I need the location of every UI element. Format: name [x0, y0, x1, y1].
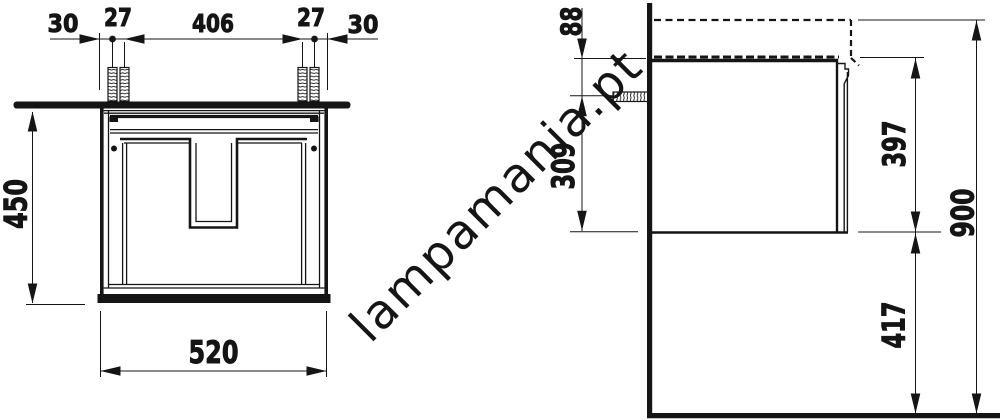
wall-plugs-front: [108, 68, 319, 102]
countertop-dashed-front: [851, 20, 859, 66]
wall-plug-icon: [108, 68, 117, 102]
dim-hole-span-label: 406: [192, 9, 234, 38]
floor-line: [647, 413, 1000, 418]
dimension-dot: [311, 36, 318, 43]
watermark-text: lampamania.pt: [339, 38, 654, 353]
technical-drawing: lampamania.pt 30 27 406: [0, 0, 1000, 420]
dim-cabinet-width-label: 520: [189, 335, 239, 371]
dim-left-gap-label: 27: [104, 3, 132, 32]
cabinet-side-outline: [652, 59, 848, 234]
countertop-front: [14, 102, 351, 109]
dim-body-height-label: 397: [877, 121, 913, 168]
wall-plug-icon: [298, 68, 307, 102]
wall-plug-side-icon: [613, 92, 648, 102]
front-view: 30 27 406 27 30 450 520: [0, 3, 379, 377]
dim-right-edge-label: 30: [348, 10, 379, 39]
dim-floor-clearance-label: 417: [877, 302, 913, 349]
wall-plug-icon: [120, 68, 129, 102]
dim-left-edge-label: 30: [48, 9, 79, 38]
dimension-dot: [109, 36, 116, 43]
cabinet-front-details: [104, 111, 325, 288]
runner-pin-right: [311, 146, 317, 152]
runner-pin-left: [111, 146, 117, 152]
dim-total-height-label: 900: [946, 189, 982, 238]
dim-top-to-screw-label: 88: [555, 7, 588, 37]
cabinet-front-solids: [98, 108, 331, 303]
wall-plug-icon: [310, 68, 319, 102]
dim-cabinet-height-label: 450: [0, 179, 35, 229]
dim-right-gap-label: 27: [297, 3, 325, 32]
countertop-dashed: [654, 20, 859, 66]
wall-line: [647, 3, 652, 418]
dim-screw-to-bottom-label: 309: [546, 143, 582, 190]
drawer-front-outline: [120, 139, 307, 228]
drawer-side-front: [838, 64, 849, 232]
technical-drawing-page: lampamania.pt 30 27 406: [0, 0, 1000, 420]
watermark: lampamania.pt: [339, 38, 654, 353]
